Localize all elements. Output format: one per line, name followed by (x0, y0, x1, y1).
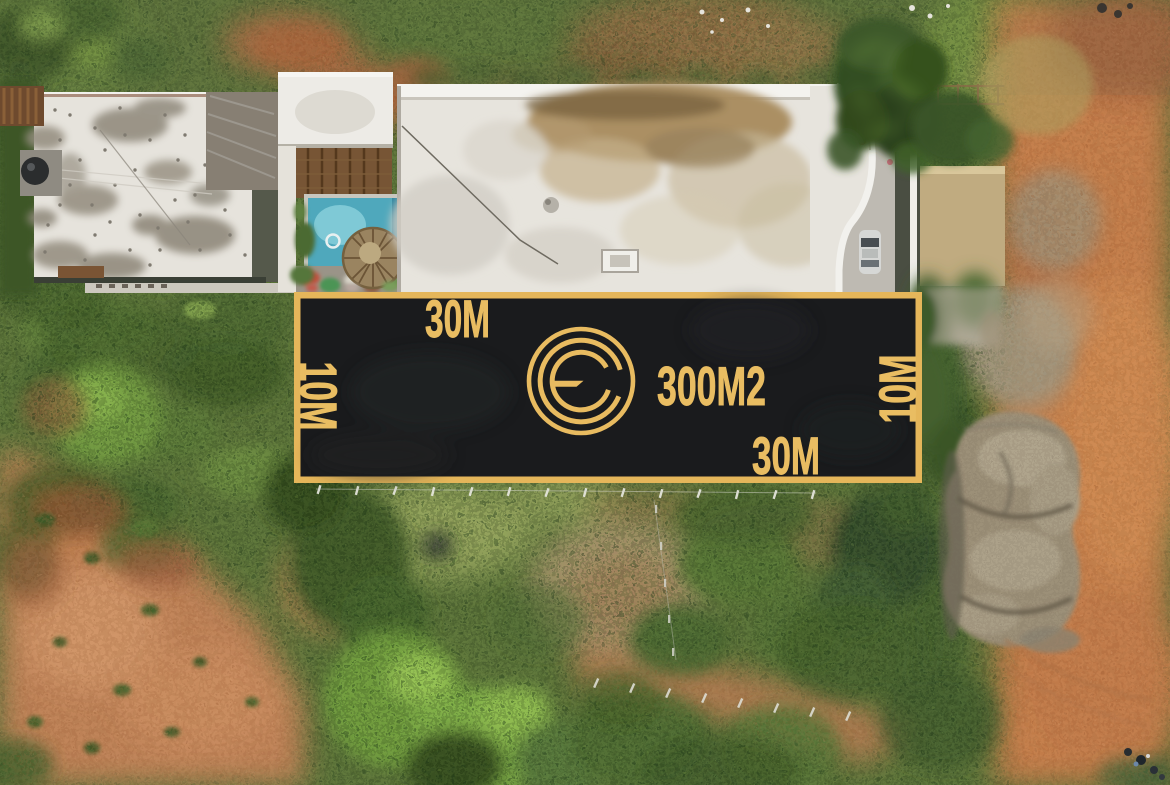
svg-text:10M: 10M (870, 355, 928, 424)
svg-text:30M: 30M (752, 427, 820, 486)
svg-text:10M: 10M (289, 362, 347, 431)
svg-text:30M: 30M (425, 290, 490, 349)
svg-text:300M2: 300M2 (657, 355, 766, 417)
